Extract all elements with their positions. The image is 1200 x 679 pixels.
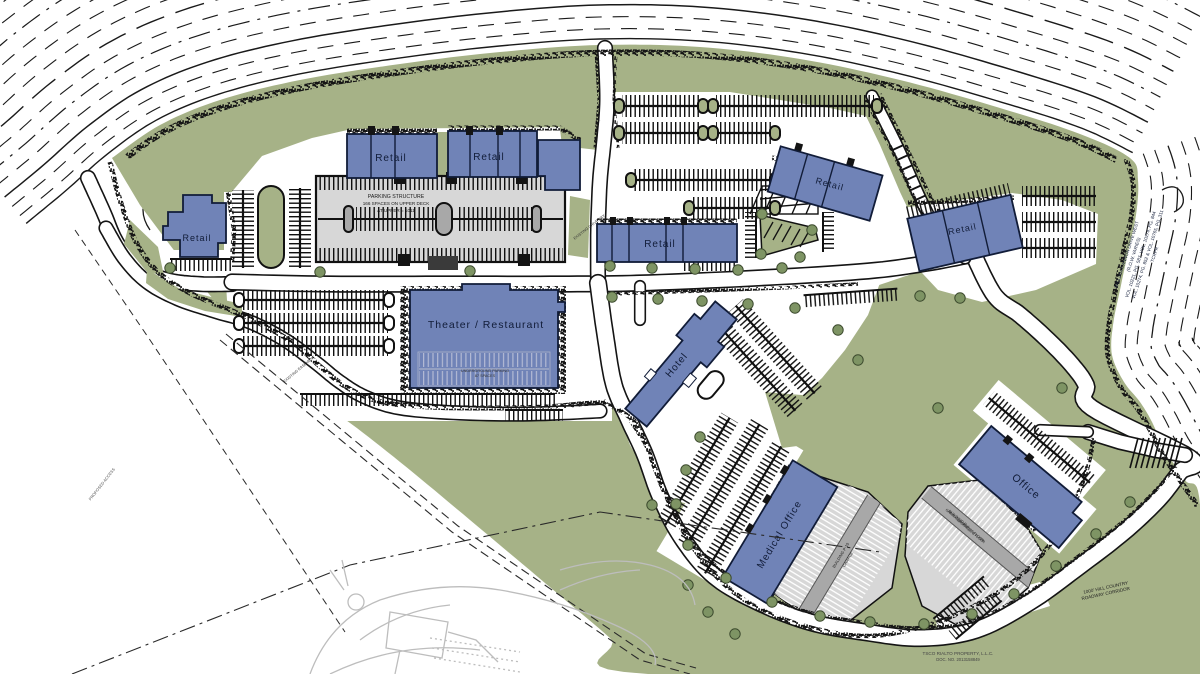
svg-text:PARKING STRUCTURE: PARKING STRUCTURE <box>368 194 425 200</box>
svg-text:TSCO RIALTO PROPERTY, L.L.C.: TSCO RIALTO PROPERTY, L.L.C. <box>923 651 994 656</box>
svg-text:UNDERGROUND PARKING: UNDERGROUND PARKING <box>461 369 509 373</box>
svg-text:Retail: Retail <box>182 233 211 243</box>
svg-text:Retail: Retail <box>644 239 676 250</box>
svg-text:DOC. NO. 2013158849: DOC. NO. 2013158849 <box>936 657 980 662</box>
svg-text:Theater / Restaurant: Theater / Restaurant <box>428 319 544 331</box>
svg-text:Retail: Retail <box>473 152 505 163</box>
svg-text:166 SPACES ON UPPER DECK: 166 SPACES ON UPPER DECK <box>363 201 430 206</box>
svg-text:87 SPACES: 87 SPACES <box>475 374 496 378</box>
svg-text:AT UPPER = 1011: AT UPPER = 1011 <box>377 208 415 213</box>
svg-text:Retail: Retail <box>375 153 407 164</box>
